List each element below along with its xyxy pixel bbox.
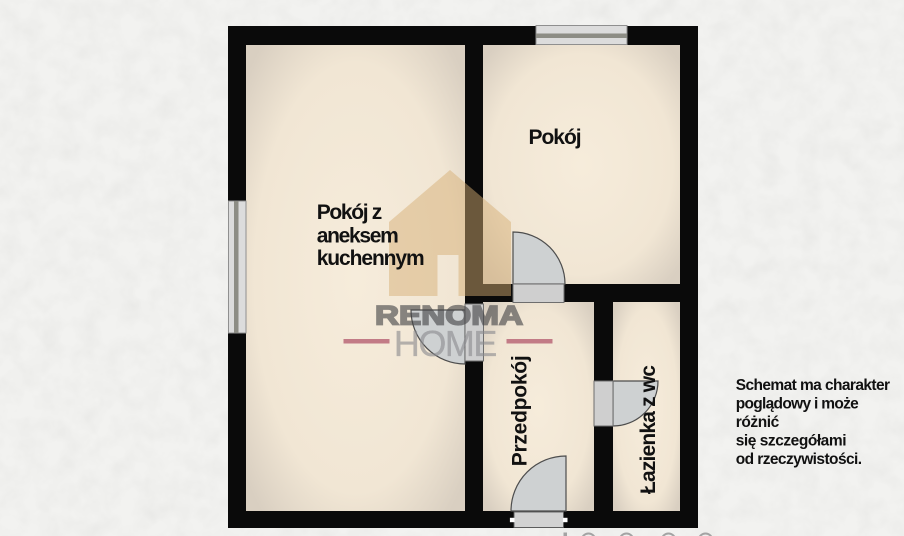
svg-text:aneksem: aneksem	[317, 225, 399, 248]
svg-text:Pokój: Pokój	[529, 126, 582, 149]
svg-text:HOME: HOME	[394, 323, 498, 364]
svg-text:poglądowy i może: poglądowy i może	[736, 396, 859, 413]
svg-text:różnić: różnić	[736, 414, 780, 431]
svg-text:Schemat ma charakter: Schemat ma charakter	[736, 377, 890, 394]
svg-text:Łazienka z wc: Łazienka z wc	[637, 365, 660, 494]
svg-text:się szczegółami: się szczegółami	[736, 432, 847, 449]
svg-text:Przedpokój: Przedpokój	[508, 355, 531, 466]
svg-text:Pokój z: Pokój z	[317, 201, 383, 224]
svg-text:od rzeczywistości.: od rzeczywistości.	[736, 451, 862, 468]
svg-text:kuchennym: kuchennym	[317, 247, 425, 270]
